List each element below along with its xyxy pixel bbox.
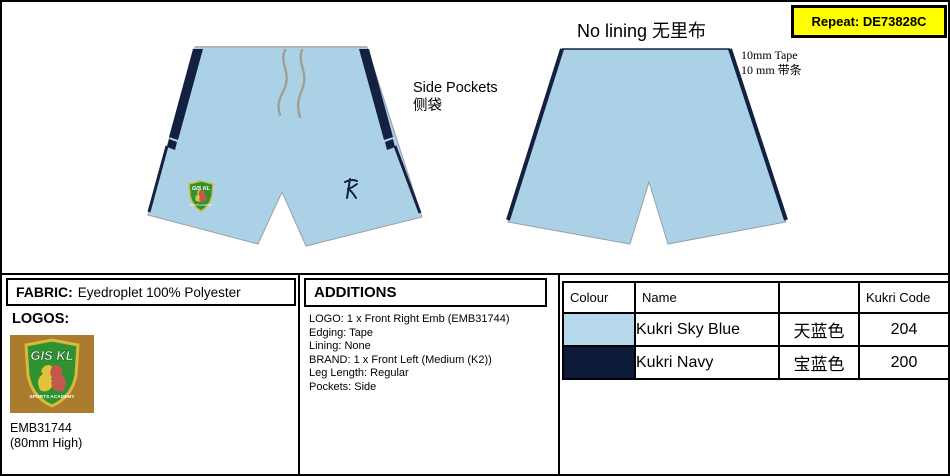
additions-list: LOGO: 1 x Front Right Emb (EMB31744) Edg… — [309, 313, 510, 394]
svg-text:SPORTS ACADEMY: SPORTS ACADEMY — [189, 203, 213, 207]
colour-table: Colour Name Kukri Code Kukri Sky Blue 天蓝… — [562, 281, 950, 380]
tape-note: 10mm Tape 10 mm 带条 — [741, 48, 802, 78]
additions-panel-header: ADDITIONS — [304, 278, 547, 307]
addition-item: Pockets: Side — [309, 381, 510, 395]
side-pockets-note: Side Pockets 侧袋 — [413, 79, 498, 115]
addition-item: Leg Length: Regular — [309, 367, 510, 381]
fabric-panel: FABRIC: Eyedroplet 100% Polyester — [6, 278, 296, 306]
colour-name-chinese: 宝蓝色 — [779, 346, 859, 379]
colour-table-header-row: Colour Name Kukri Code — [563, 282, 949, 313]
colour-name-chinese: 天蓝色 — [779, 313, 859, 346]
addition-item: BRAND: 1 x Front Left (Medium (K2)) — [309, 354, 510, 368]
shorts-front-drawing: GIS KL SPORTS ACADEMY — [140, 40, 432, 260]
kukri-code: 204 — [859, 313, 949, 346]
logo-badge-image: GIS KL SPORTS ACADEMY — [10, 335, 94, 413]
vertical-divider-left — [298, 273, 300, 476]
embroidery-info: EMB31744 (80mm High) — [10, 421, 82, 451]
addition-item: Edging: Tape — [309, 327, 510, 341]
side-pockets-cn: 侧袋 — [413, 97, 498, 115]
crest-title: GIS KL — [30, 348, 73, 363]
tape-note-cn: 10 mm 带条 — [741, 63, 802, 78]
shorts-back-body — [508, 49, 786, 244]
spec-sheet-page: GIS KL SPORTS ACADEMY Repeat: DE73828C N… — [0, 0, 950, 476]
header-kukri-code: Kukri Code — [859, 282, 949, 313]
horizontal-divider — [2, 273, 950, 275]
header-name: Name — [635, 282, 779, 313]
kukri-code: 200 — [859, 346, 949, 379]
gis-kl-crest: GIS KL SPORTS ACADEMY — [10, 335, 94, 413]
swatch-navy — [563, 346, 635, 379]
repeat-code-badge: Repeat: DE73828C — [791, 5, 947, 38]
swatch-sky-blue — [563, 313, 635, 346]
additions-title: ADDITIONS — [314, 284, 397, 301]
colour-row-sky-blue: Kukri Sky Blue 天蓝色 204 — [563, 313, 949, 346]
tape-note-en: 10mm Tape — [741, 48, 802, 63]
side-pockets-en: Side Pockets — [413, 79, 498, 97]
addition-item: LOGO: 1 x Front Right Emb (EMB31744) — [309, 313, 510, 327]
repeat-code-label: Repeat: DE73828C — [812, 14, 927, 29]
embroidery-code: EMB31744 — [10, 421, 82, 436]
fabric-label: FABRIC: — [16, 284, 73, 300]
fabric-value: Eyedroplet 100% Polyester — [78, 285, 241, 300]
no-lining-note: No lining 无里布 — [577, 17, 706, 43]
vertical-divider-right — [558, 273, 560, 476]
header-colour: Colour — [563, 282, 635, 313]
crest-subtitle: SPORTS ACADEMY — [29, 394, 75, 400]
crest-embroidery: GIS KL SPORTS ACADEMY — [189, 181, 213, 211]
header-chinese — [779, 282, 859, 313]
colour-row-navy: Kukri Navy 宝蓝色 200 — [563, 346, 949, 379]
logos-label: LOGOS: — [12, 311, 69, 327]
colour-name: Kukri Navy — [635, 346, 779, 379]
addition-item: Lining: None — [309, 340, 510, 354]
colour-name: Kukri Sky Blue — [635, 313, 779, 346]
embroidery-size: (80mm High) — [10, 436, 82, 451]
